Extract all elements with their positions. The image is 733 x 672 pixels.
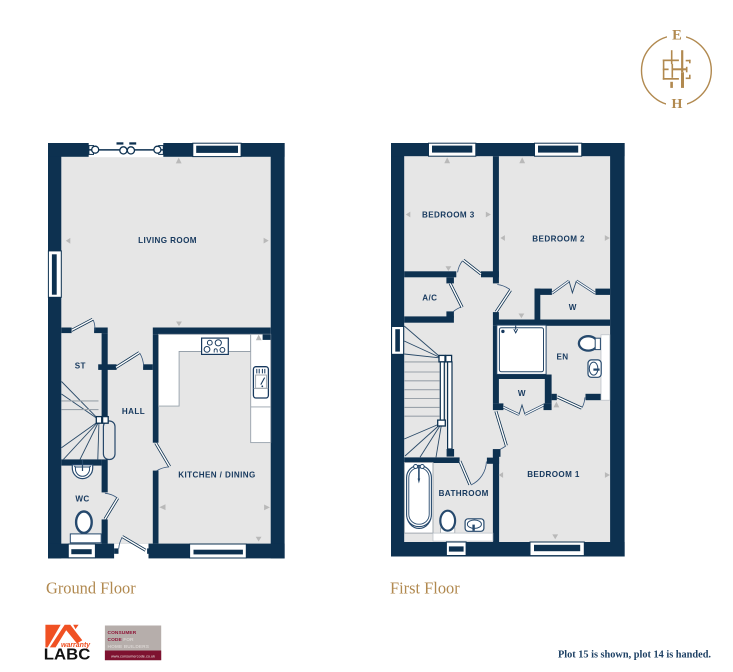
svg-text:LIVING ROOM: LIVING ROOM	[138, 236, 197, 245]
svg-text:A/C: A/C	[422, 294, 437, 303]
svg-text:CONSUMER: CONSUMER	[108, 630, 137, 636]
svg-text:BEDROOM 2: BEDROOM 2	[532, 234, 585, 243]
svg-text:BATHROOM: BATHROOM	[439, 489, 489, 498]
svg-text:EN: EN	[556, 352, 568, 361]
svg-text:LABC: LABC	[44, 646, 91, 663]
svg-text:KITCHEN / DINING: KITCHEN / DINING	[178, 471, 255, 480]
svg-text:ST: ST	[75, 361, 86, 370]
svg-text:BEDROOM 1: BEDROOM 1	[527, 470, 580, 479]
svg-text:Ground Floor: Ground Floor	[46, 579, 136, 598]
svg-text:First Floor: First Floor	[390, 579, 460, 598]
svg-text:WC: WC	[75, 494, 89, 503]
svg-text:CODE FOR: CODE FOR	[108, 637, 135, 643]
svg-text:W: W	[518, 389, 526, 398]
svg-text:HOME BUILDERS: HOME BUILDERS	[108, 644, 150, 650]
svg-text:BEDROOM 3: BEDROOM 3	[422, 211, 475, 220]
svg-text:Plot 15 is shown, plot 14 is h: Plot 15 is shown, plot 14 is handed.	[558, 649, 711, 660]
svg-text:HALL: HALL	[122, 407, 145, 416]
svg-text:W: W	[569, 303, 577, 312]
svg-text:www.consumercode.co.uk: www.consumercode.co.uk	[111, 654, 155, 658]
svg-text:H: H	[672, 97, 683, 112]
svg-text:E: E	[672, 27, 682, 43]
